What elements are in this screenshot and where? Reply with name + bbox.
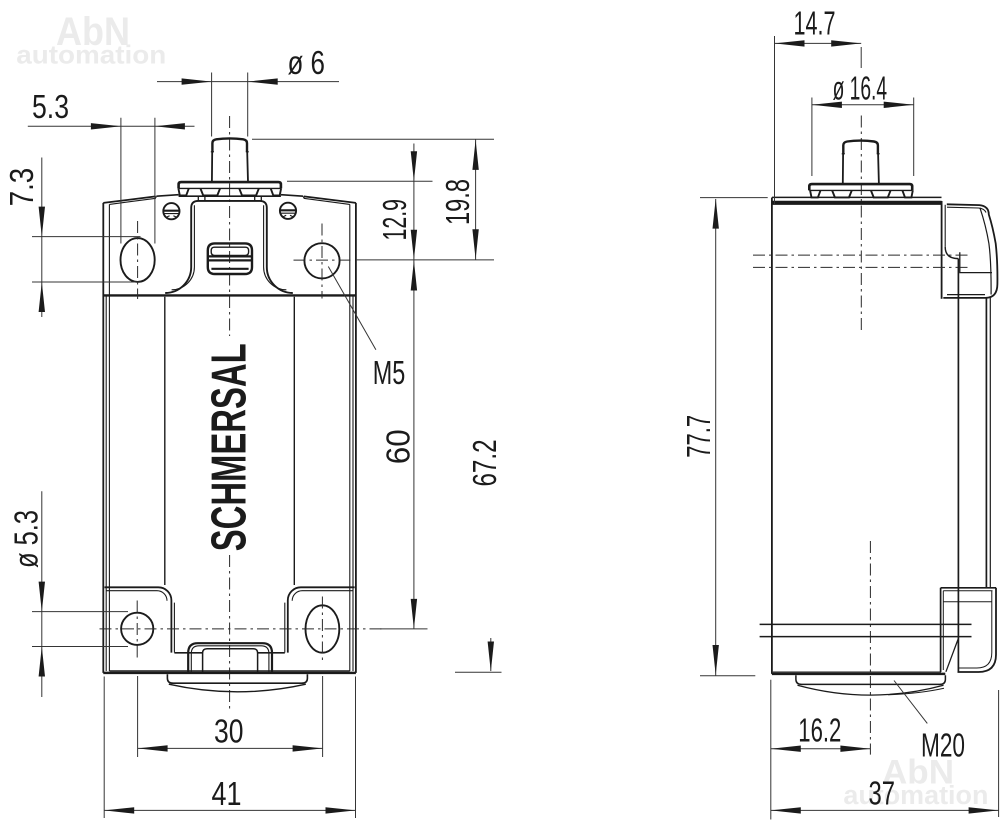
svg-text:7.3: 7.3	[3, 168, 40, 207]
svg-text:77.7: 77.7	[680, 415, 717, 458]
svg-text:ø 6: ø 6	[288, 44, 326, 81]
svg-text:30: 30	[214, 713, 244, 750]
svg-text:41: 41	[212, 775, 242, 812]
svg-text:M5: M5	[373, 354, 406, 391]
svg-text:12.9: 12.9	[376, 199, 413, 241]
svg-text:M20: M20	[921, 727, 965, 764]
svg-text:14.7: 14.7	[794, 5, 836, 42]
svg-text:19.8: 19.8	[439, 179, 476, 225]
svg-text:ø 5.3: ø 5.3	[8, 510, 45, 568]
svg-text:automation: automation	[16, 40, 166, 70]
svg-text:37: 37	[869, 775, 896, 812]
svg-text:67.2: 67.2	[466, 440, 503, 487]
svg-text:automation: automation	[843, 782, 988, 810]
svg-text:SCHMERSAL: SCHMERSAL	[202, 343, 256, 551]
svg-text:5.3: 5.3	[32, 88, 69, 125]
svg-text:60: 60	[379, 429, 416, 464]
svg-text:ø 16.4: ø 16.4	[833, 70, 888, 107]
svg-text:16.2: 16.2	[798, 712, 841, 749]
